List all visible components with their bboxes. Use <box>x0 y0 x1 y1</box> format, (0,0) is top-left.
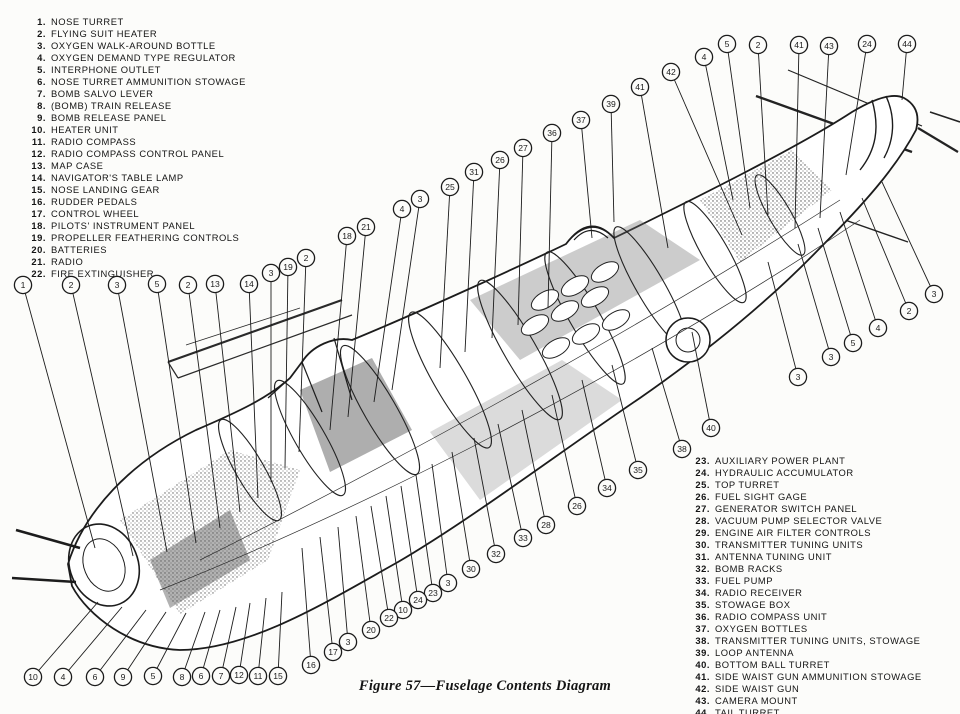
legend-item-label: ENGINE AIR FILTER CONTROLS <box>715 528 871 537</box>
legend-item-label: BOTTOM BALL TURRET <box>715 660 830 669</box>
callout-number: 3 <box>418 194 423 204</box>
legend-item-number: 18. <box>26 221 46 230</box>
callout-number: 23 <box>428 588 438 598</box>
callout-number: 2 <box>907 306 912 316</box>
legend-item-label: FLYING SUIT HEATER <box>51 29 157 38</box>
callout-number: 8 <box>180 672 185 682</box>
callout-number: 34 <box>602 483 612 493</box>
legend-item-label: RADIO RECEIVER <box>715 588 802 597</box>
legend-item-label: NOSE TURRET <box>51 17 124 26</box>
legend-item-number: 2. <box>26 29 46 38</box>
legend-item: 24.HYDRAULIC ACCUMULATOR <box>690 468 922 477</box>
legend-item-label: FUEL PUMP <box>715 576 773 585</box>
legend-item: 1.NOSE TURRET <box>26 17 246 26</box>
callout-number: 24 <box>413 595 423 605</box>
callout-number: 3 <box>829 352 834 362</box>
callout-leader-line <box>798 244 831 357</box>
legend-item-label: TAIL TURRET <box>715 708 780 714</box>
legend-list-right: 23.AUXILIARY POWER PLANT24.HYDRAULIC ACC… <box>690 456 922 714</box>
callout-number: 4 <box>61 672 66 682</box>
legend-item: 40.BOTTOM BALL TURRET <box>690 660 922 669</box>
callout-3: 3 <box>882 182 943 303</box>
legend-item-number: 29. <box>690 528 710 537</box>
ball-turret-detail <box>666 318 710 362</box>
legend-item-number: 27. <box>690 504 710 513</box>
legend-item-label: BOMB RACKS <box>715 564 783 573</box>
legend-item-label: BATTERIES <box>51 245 107 254</box>
legend-item-label: NOSE TURRET AMMUNITION STOWAGE <box>51 77 246 86</box>
legend-item: 19.PROPELLER FEATHERING CONTROLS <box>26 233 246 242</box>
legend-item-label: TOP TURRET <box>715 480 780 489</box>
callout-number: 25 <box>445 182 455 192</box>
legend-item: 3.OXYGEN WALK-AROUND BOTTLE <box>26 41 246 50</box>
callout-number: 44 <box>902 39 912 49</box>
legend-item: 35.STOWAGE BOX <box>690 600 922 609</box>
legend-item-number: 38. <box>690 636 710 645</box>
callout-5: 5 <box>818 228 862 352</box>
legend-item-label: OXYGEN DEMAND TYPE REGULATOR <box>51 53 236 62</box>
callout-number: 30 <box>466 564 476 574</box>
legend-item-label: (BOMB) TRAIN RELEASE <box>51 101 172 110</box>
callout-number: 37 <box>576 115 586 125</box>
legend-item-label: AUXILIARY POWER PLANT <box>715 456 845 465</box>
legend-item-number: 24. <box>690 468 710 477</box>
callout-number: 33 <box>518 533 528 543</box>
callout-number: 20 <box>366 625 376 635</box>
callout-number: 2 <box>69 280 74 290</box>
legend-item: 31.ANTENNA TUNING UNIT <box>690 552 922 561</box>
legend-item-number: 43. <box>690 696 710 705</box>
legend-item: 36.RADIO COMPASS UNIT <box>690 612 922 621</box>
callout-number: 16 <box>306 660 316 670</box>
legend-item: 17.CONTROL WHEEL <box>26 209 246 218</box>
callout-number: 3 <box>269 268 274 278</box>
legend-item-number: 4. <box>26 53 46 62</box>
callout-number: 31 <box>469 167 479 177</box>
callout-number: 5 <box>725 39 730 49</box>
legend-item-label: PILOTS' INSTRUMENT PANEL <box>51 221 195 230</box>
legend-item-label: PROPELLER FEATHERING CONTROLS <box>51 233 239 242</box>
legend-item: 29.ENGINE AIR FILTER CONTROLS <box>690 528 922 537</box>
legend-item: 34.RADIO RECEIVER <box>690 588 922 597</box>
legend-item-label: VACUUM PUMP SELECTOR VALVE <box>715 516 882 525</box>
legend-item-number: 40. <box>690 660 710 669</box>
legend-item-label: HYDRAULIC ACCUMULATOR <box>715 468 854 477</box>
callout-leader-line <box>33 602 98 677</box>
legend-item-label: RADIO COMPASS CONTROL PANEL <box>51 149 224 158</box>
legend-item-label: MAP CASE <box>51 161 103 170</box>
legend-item: 23.AUXILIARY POWER PLANT <box>690 456 922 465</box>
legend-item: 16.RUDDER PEDALS <box>26 197 246 206</box>
legend-item-label: CAMERA MOUNT <box>715 696 798 705</box>
callout-4: 4 <box>840 212 887 337</box>
legend-item: 4.OXYGEN DEMAND TYPE REGULATOR <box>26 53 246 62</box>
legend-item: 6.NOSE TURRET AMMUNITION STOWAGE <box>26 77 246 86</box>
callout-37: 37 <box>572 111 592 238</box>
legend-item-label: CONTROL WHEEL <box>51 209 139 218</box>
legend-item-label: SIDE WAIST GUN AMMUNITION STOWAGE <box>715 672 922 681</box>
legend-item-number: 12. <box>26 149 46 158</box>
legend-item: 25.TOP TURRET <box>690 480 922 489</box>
legend-item-number: 22. <box>26 269 46 278</box>
legend-item-number: 31. <box>690 552 710 561</box>
legend-item-label: FUEL SIGHT GAGE <box>715 492 807 501</box>
legend-item: 12.RADIO COMPASS CONTROL PANEL <box>26 149 246 158</box>
legend-item-number: 8. <box>26 101 46 110</box>
callout-number: 3 <box>346 637 351 647</box>
callout-number: 9 <box>121 672 126 682</box>
callout-number: 2 <box>186 280 191 290</box>
callout-number: 3 <box>115 280 120 290</box>
callout-number: 4 <box>876 323 881 333</box>
callout-number: 21 <box>361 222 371 232</box>
legend-item-number: 11. <box>26 137 46 146</box>
callout-number: 12 <box>234 670 244 680</box>
callout-leader-line <box>611 104 614 222</box>
callout-2: 2 <box>862 198 918 320</box>
legend-item: 5.INTERPHONE OUTLET <box>26 65 246 74</box>
legend-item-number: 23. <box>690 456 710 465</box>
legend-item-label: GENERATOR SWITCH PANEL <box>715 504 857 513</box>
callout-number: 41 <box>794 40 804 50</box>
callout-number: 1 <box>21 280 26 290</box>
legend-item-number: 25. <box>690 480 710 489</box>
callout-leader-line <box>704 57 733 200</box>
legend-item: 33.FUEL PUMP <box>690 576 922 585</box>
legend-item: 32.BOMB RACKS <box>690 564 922 573</box>
legend-item-label: HEATER UNIT <box>51 125 119 134</box>
legend-item: 43.CAMERA MOUNT <box>690 696 922 705</box>
callout-39: 39 <box>602 95 619 222</box>
callout-number: 7 <box>219 671 224 681</box>
legend-item: 15.NOSE LANDING GEAR <box>26 185 246 194</box>
legend-item: 42.SIDE WAIST GUN <box>690 684 922 693</box>
legend-item-number: 14. <box>26 173 46 182</box>
legend-item-number: 3. <box>26 41 46 50</box>
legend-item-label: RADIO COMPASS <box>51 137 136 146</box>
callout-leader-line <box>882 182 934 294</box>
legend-item-label: RADIO <box>51 257 83 266</box>
callout-number: 24 <box>862 39 872 49</box>
callout-number: 41 <box>635 82 645 92</box>
legend-item-number: 33. <box>690 576 710 585</box>
callout-number: 4 <box>400 204 405 214</box>
legend-item: 2.FLYING SUIT HEATER <box>26 29 246 38</box>
legend-item-number: 10. <box>26 125 46 134</box>
callout-number: 19 <box>283 262 293 272</box>
legend-item-label: ANTENNA TUNING UNIT <box>715 552 832 561</box>
callout-leader-line <box>581 120 592 238</box>
legend-item: 14.NAVIGATOR'S TABLE LAMP <box>26 173 246 182</box>
callout-number: 38 <box>677 444 687 454</box>
legend-item-label: RADIO COMPASS UNIT <box>715 612 827 621</box>
callout-number: 32 <box>491 549 501 559</box>
legend-item: 13.MAP CASE <box>26 161 246 170</box>
legend-item-label: INTERPHONE OUTLET <box>51 65 161 74</box>
callout-number: 5 <box>851 338 856 348</box>
callout-4: 4 <box>695 48 733 200</box>
legend-item-number: 35. <box>690 600 710 609</box>
legend-item: 18.PILOTS' INSTRUMENT PANEL <box>26 221 246 230</box>
callout-number: 26 <box>495 155 505 165</box>
callout-leader-line <box>862 198 909 311</box>
legend-item-number: 5. <box>26 65 46 74</box>
legend-item: 9.BOMB RELEASE PANEL <box>26 113 246 122</box>
legend-item: 26.FUEL SIGHT GAGE <box>690 492 922 501</box>
legend-item-number: 37. <box>690 624 710 633</box>
callout-number: 3 <box>796 372 801 382</box>
figure-page: 1235213143192182143253126273637394142452… <box>0 0 960 714</box>
callout-number: 10 <box>398 605 408 615</box>
callout-number: 2 <box>304 253 309 263</box>
callout-number: 18 <box>342 231 352 241</box>
callout-number: 35 <box>633 465 643 475</box>
legend-item: 44.TAIL TURRET <box>690 708 922 714</box>
callout-number: 40 <box>706 423 716 433</box>
legend-item: 41.SIDE WAIST GUN AMMUNITION STOWAGE <box>690 672 922 681</box>
legend-item-number: 17. <box>26 209 46 218</box>
callout-1: 1 <box>14 276 95 548</box>
legend-item-label: OXYGEN BOTTLES <box>715 624 808 633</box>
legend-item-number: 15. <box>26 185 46 194</box>
legend-item-number: 44. <box>690 708 710 714</box>
callout-number: 27 <box>518 143 528 153</box>
legend-item: 11.RADIO COMPASS <box>26 137 246 146</box>
callout-number: 2 <box>756 40 761 50</box>
legend-item-label: OXYGEN WALK-AROUND BOTTLE <box>51 41 216 50</box>
callout-number: 26 <box>572 501 582 511</box>
callout-leader-line <box>23 285 95 548</box>
legend-item-number: 39. <box>690 648 710 657</box>
legend-item-label: STOWAGE BOX <box>715 600 791 609</box>
callout-number: 42 <box>666 67 676 77</box>
legend-item-number: 19. <box>26 233 46 242</box>
legend-item-number: 21. <box>26 257 46 266</box>
legend-item: 7.BOMB SALVO LEVER <box>26 89 246 98</box>
callout-leader-line <box>63 607 122 677</box>
legend-item-number: 6. <box>26 77 46 86</box>
callout-number: 10 <box>28 672 38 682</box>
callout-number: 5 <box>151 671 156 681</box>
legend-item: 28.VACUUM PUMP SELECTOR VALVE <box>690 516 922 525</box>
legend-item-number: 13. <box>26 161 46 170</box>
legend-item: 38.TRANSMITTER TUNING UNITS, STOWAGE <box>690 636 922 645</box>
legend-item-number: 32. <box>690 564 710 573</box>
legend-item-label: BOMB SALVO LEVER <box>51 89 153 98</box>
legend-item: 21.RADIO <box>26 257 246 266</box>
legend-item-number: 16. <box>26 197 46 206</box>
legend-item-number: 20. <box>26 245 46 254</box>
legend-item-label: TRANSMITTER TUNING UNITS, STOWAGE <box>715 636 920 645</box>
legend-item-number: 36. <box>690 612 710 621</box>
callout-number: 39 <box>606 99 616 109</box>
legend-item: 22.FIRE EXTINGUISHER <box>26 269 246 278</box>
callout-leader-line <box>818 228 853 343</box>
legend-item: 20.BATTERIES <box>26 245 246 254</box>
legend-item: 27.GENERATOR SWITCH PANEL <box>690 504 922 513</box>
callout-number: 6 <box>199 671 204 681</box>
callout-number: 17 <box>328 647 338 657</box>
legend-item-label: TRANSMITTER TUNING UNITS <box>715 540 863 549</box>
legend-item-label: BOMB RELEASE PANEL <box>51 113 166 122</box>
legend-item: 8.(BOMB) TRAIN RELEASE <box>26 101 246 110</box>
callout-number: 43 <box>824 41 834 51</box>
legend-item-number: 1. <box>26 17 46 26</box>
legend-item-number: 9. <box>26 113 46 122</box>
legend-item-label: FIRE EXTINGUISHER <box>51 269 154 278</box>
legend-item: 10.HEATER UNIT <box>26 125 246 134</box>
legend-item-label: SIDE WAIST GUN <box>715 684 799 693</box>
legend-item-number: 26. <box>690 492 710 501</box>
callout-number: 28 <box>541 520 551 530</box>
legend-item-label: RUDDER PEDALS <box>51 197 137 206</box>
callout-44: 44 <box>898 35 915 100</box>
legend-item-number: 34. <box>690 588 710 597</box>
callout-number: 3 <box>446 578 451 588</box>
callout-number: 6 <box>93 672 98 682</box>
legend-item: 39.LOOP ANTENNA <box>690 648 922 657</box>
legend-item-number: 7. <box>26 89 46 98</box>
legend-item-label: LOOP ANTENNA <box>715 648 794 657</box>
callout-number: 22 <box>384 613 394 623</box>
callout-number: 3 <box>932 289 937 299</box>
legend-list-left: 1.NOSE TURRET2.FLYING SUIT HEATER3.OXYGE… <box>26 17 246 281</box>
legend-item-label: NAVIGATOR'S TABLE LAMP <box>51 173 184 182</box>
figure-caption: Figure 57—Fuselage Contents Diagram <box>260 678 710 695</box>
legend-item-number: 30. <box>690 540 710 549</box>
legend-item: 37.OXYGEN BOTTLES <box>690 624 922 633</box>
legend-item-label: NOSE LANDING GEAR <box>51 185 160 194</box>
callout-number: 4 <box>702 52 707 62</box>
callout-number: 36 <box>547 128 557 138</box>
legend-item-number: 28. <box>690 516 710 525</box>
legend-item: 30.TRANSMITTER TUNING UNITS <box>690 540 922 549</box>
